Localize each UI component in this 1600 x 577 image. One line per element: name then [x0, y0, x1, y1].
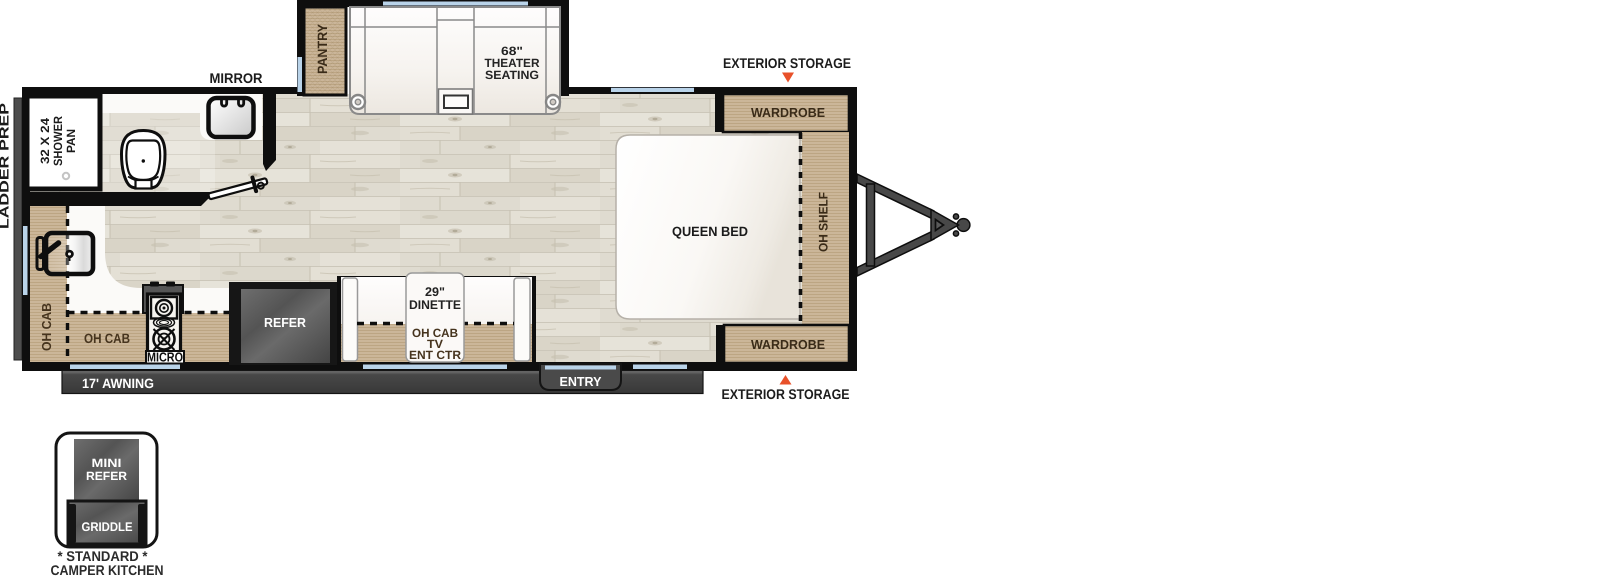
svg-text:PANTRY: PANTRY [315, 24, 330, 74]
svg-text:MIRROR: MIRROR [210, 70, 263, 86]
svg-text:EXTERIOR STORAGE: EXTERIOR STORAGE [722, 386, 850, 402]
svg-text:PAN: PAN [64, 129, 78, 153]
svg-text:17' AWNING: 17' AWNING [82, 376, 154, 391]
svg-text:SHOWER: SHOWER [51, 116, 65, 166]
svg-text:MICRO: MICRO [147, 350, 183, 365]
svg-text:OH SHELF: OH SHELF [817, 192, 831, 252]
svg-text:29": 29" [425, 285, 445, 299]
svg-text:DINETTE: DINETTE [409, 298, 461, 312]
svg-text:CAMPER KITCHEN: CAMPER KITCHEN [51, 562, 164, 577]
svg-text:GRIDDLE: GRIDDLE [82, 520, 133, 534]
svg-text:ENTRY: ENTRY [560, 374, 602, 389]
svg-text:SEATING: SEATING [485, 68, 539, 82]
svg-text:WARDROBE: WARDROBE [751, 105, 825, 120]
svg-text:LADDER PREP: LADDER PREP [0, 103, 12, 229]
svg-text:REFER: REFER [264, 315, 307, 330]
svg-text:REFER: REFER [86, 469, 127, 483]
svg-text:EXTERIOR STORAGE: EXTERIOR STORAGE [723, 55, 851, 71]
svg-text:MINI: MINI [92, 456, 122, 470]
svg-text:32 X 24: 32 X 24 [38, 118, 52, 164]
svg-text:OH CAB: OH CAB [84, 331, 130, 346]
svg-text:OH CAB: OH CAB [39, 303, 54, 351]
svg-text:ENT CTR: ENT CTR [409, 348, 461, 362]
svg-text:WARDROBE: WARDROBE [751, 337, 825, 352]
svg-text:QUEEN BED: QUEEN BED [672, 224, 748, 239]
